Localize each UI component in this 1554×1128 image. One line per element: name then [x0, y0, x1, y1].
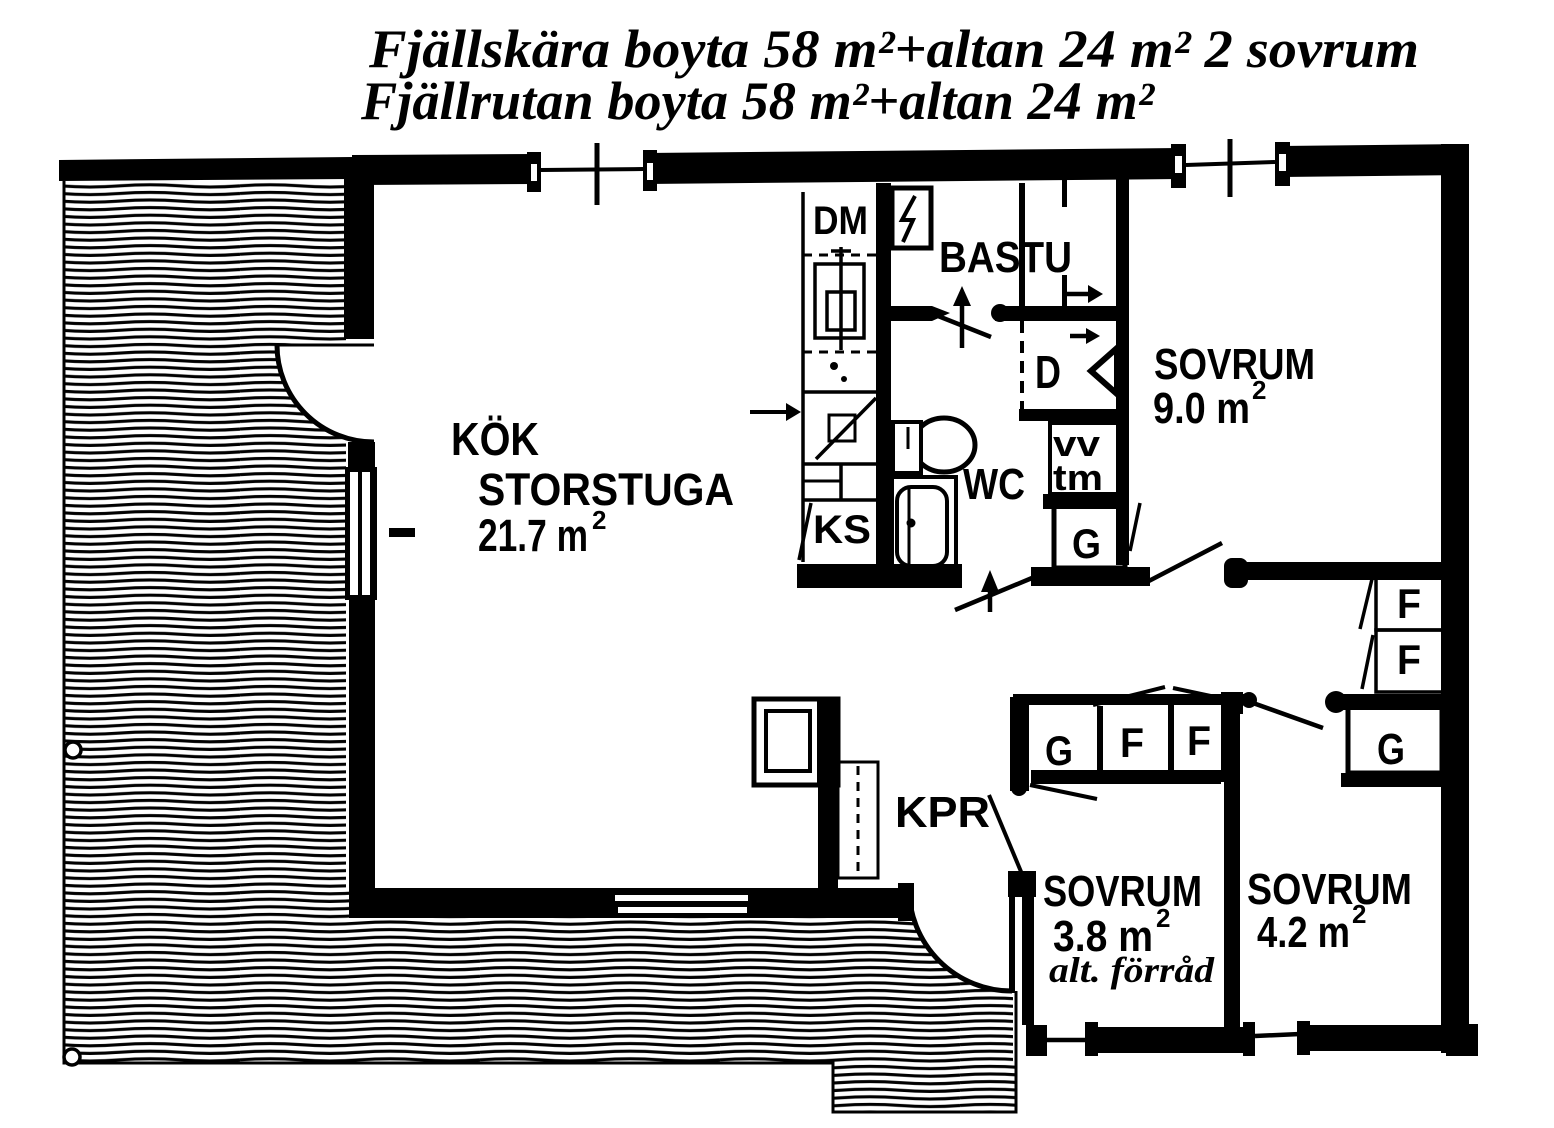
svg-text:SOVRUM: SOVRUM [1247, 865, 1412, 914]
svg-text:G: G [1072, 520, 1101, 567]
svg-text:2: 2 [1352, 899, 1366, 929]
svg-text:Fjällskära boyta 58 m²+altan 2: Fjällskära boyta 58 m²+altan 24 m² 2 sov… [368, 19, 1419, 79]
svg-text:F: F [1120, 719, 1144, 766]
svg-text:D: D [1035, 346, 1061, 398]
svg-text:9.0 m: 9.0 m [1153, 384, 1250, 433]
svg-text:BASTU: BASTU [939, 233, 1072, 282]
svg-text:SOVRUM: SOVRUM [1043, 867, 1202, 916]
svg-text:2: 2 [1252, 375, 1266, 405]
svg-text:2: 2 [592, 505, 606, 535]
svg-text:F: F [1397, 580, 1421, 627]
svg-text:alt. förråd: alt. förråd [1049, 950, 1215, 990]
svg-text:4.2 m: 4.2 m [1257, 908, 1350, 957]
svg-text:G: G [1045, 727, 1073, 774]
svg-text:WC: WC [963, 460, 1025, 509]
svg-text:G: G [1377, 725, 1405, 774]
svg-text:Fjällrutan boyta 58 m²+altan 2: Fjällrutan boyta 58 m²+altan 24 m² [360, 71, 1156, 131]
svg-text:SOVRUM: SOVRUM [1154, 340, 1315, 389]
svg-text:KPR: KPR [895, 788, 990, 837]
svg-text:DM: DM [813, 199, 868, 243]
svg-text:2: 2 [1156, 903, 1170, 933]
svg-text:KS: KS [813, 508, 871, 552]
svg-text:KÖK: KÖK [451, 413, 539, 465]
svg-text:21.7 m: 21.7 m [478, 510, 588, 561]
svg-text:F: F [1397, 636, 1421, 683]
svg-text:tm: tm [1053, 457, 1103, 498]
svg-text:F: F [1187, 717, 1211, 764]
